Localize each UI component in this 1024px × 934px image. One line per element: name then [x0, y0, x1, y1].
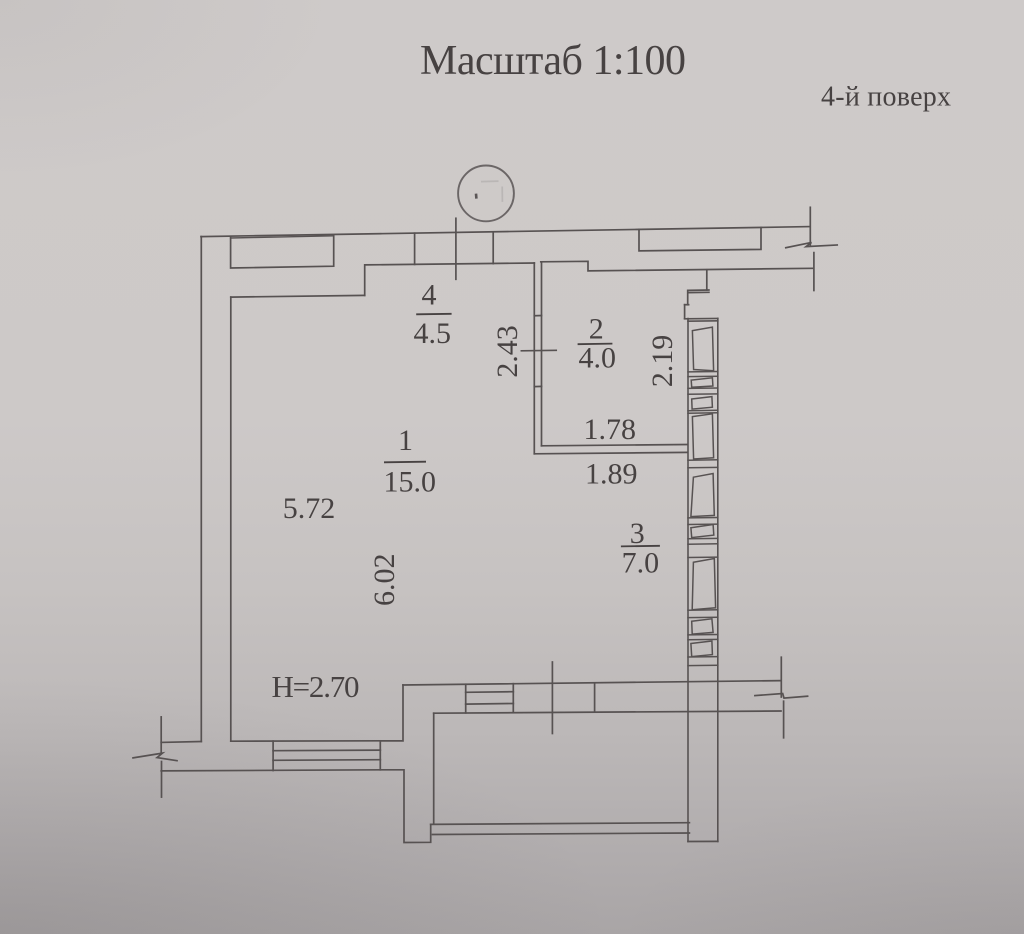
svg-text:4.5: 4.5 [414, 317, 452, 350]
svg-text:4: 4 [422, 279, 437, 312]
svg-text:2.19: 2.19 [646, 335, 679, 388]
svg-text:4.0: 4.0 [578, 342, 616, 375]
svg-text:6.02: 6.02 [368, 554, 401, 607]
svg-text:1.78: 1.78 [583, 413, 636, 446]
svg-text:1.89: 1.89 [585, 458, 638, 491]
svg-text:Масштаб 1:100: Масштаб 1:100 [420, 38, 686, 84]
svg-text:2: 2 [589, 312, 604, 345]
svg-text:4-й поверх: 4-й поверх [821, 82, 951, 113]
svg-text:15.0: 15.0 [384, 466, 437, 499]
svg-text:7.0: 7.0 [622, 546, 660, 579]
svg-text:1: 1 [398, 424, 413, 457]
svg-text:H=2.70: H=2.70 [272, 669, 360, 704]
svg-text:5.72: 5.72 [283, 492, 336, 525]
svg-text:3: 3 [630, 517, 645, 550]
svg-text:2.43: 2.43 [491, 325, 524, 378]
